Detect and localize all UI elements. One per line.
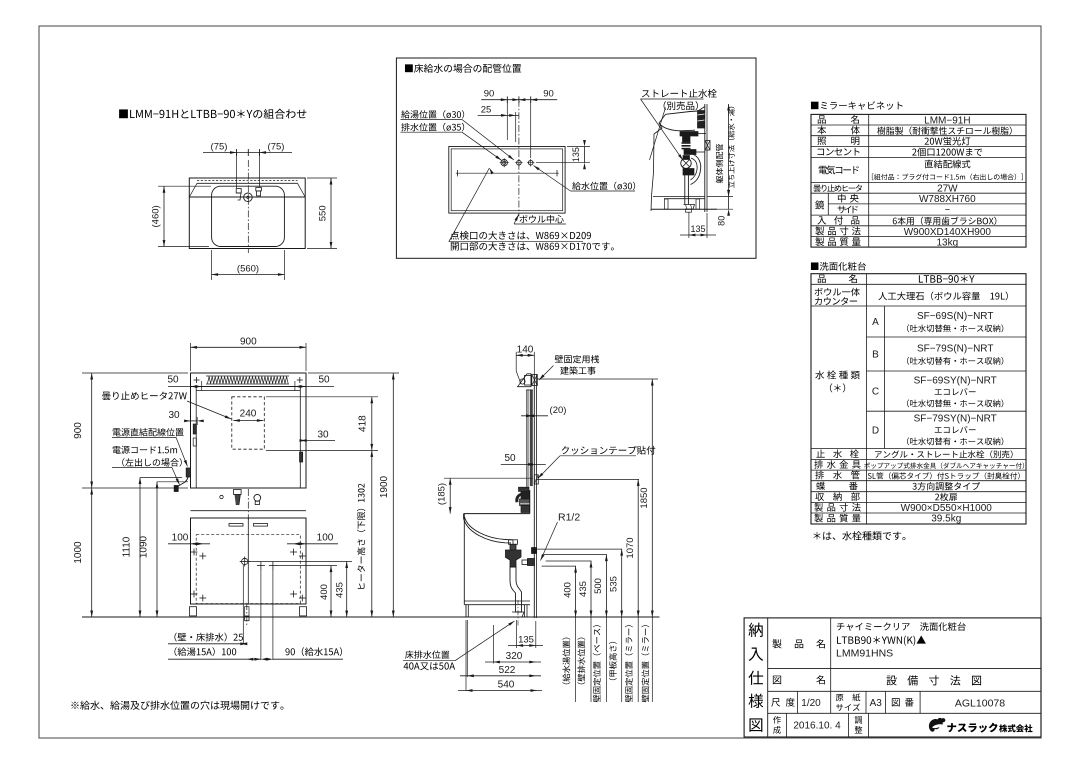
svg-text:LMM−91H: LMM−91H — [924, 116, 970, 127]
svg-text:100: 100 — [317, 533, 334, 544]
svg-text:135: 135 — [571, 147, 581, 162]
svg-text:100: 100 — [172, 533, 189, 544]
svg-text:1070: 1070 — [625, 537, 636, 558]
svg-text:90: 90 — [484, 89, 495, 100]
svg-text:1110: 1110 — [122, 536, 133, 557]
svg-text:SF−69S(N)−NRT: SF−69S(N)−NRT — [917, 311, 994, 322]
svg-text:900: 900 — [73, 422, 84, 439]
svg-text:1/20: 1/20 — [801, 698, 821, 709]
svg-text:50: 50 — [167, 375, 179, 386]
svg-text:(75): (75) — [211, 142, 228, 153]
svg-text:140: 140 — [517, 344, 534, 355]
svg-text:90: 90 — [543, 89, 554, 100]
svg-text:W900×D550×H1000: W900×D550×H1000 — [901, 503, 993, 514]
svg-text:400: 400 — [562, 582, 573, 598]
svg-text:400: 400 — [319, 584, 330, 600]
svg-text:LMM91HNS: LMM91HNS — [836, 648, 893, 660]
svg-text:(185): (185) — [437, 483, 448, 505]
svg-text:320: 320 — [506, 651, 523, 662]
svg-text:522: 522 — [499, 665, 516, 676]
svg-text:500: 500 — [593, 578, 604, 594]
svg-text:535: 535 — [609, 576, 620, 592]
svg-text:SF−69SY(N)−NRT: SF−69SY(N)−NRT — [914, 376, 997, 387]
svg-text:1850: 1850 — [639, 487, 650, 508]
svg-text:AGL10078: AGL10078 — [955, 697, 1005, 709]
svg-text:D: D — [872, 426, 879, 437]
svg-text:435: 435 — [334, 582, 345, 598]
svg-text:135: 135 — [690, 224, 705, 234]
svg-text:A3: A3 — [870, 698, 883, 709]
svg-text:A: A — [872, 317, 879, 328]
svg-text:30: 30 — [317, 430, 329, 441]
svg-text:240: 240 — [240, 409, 257, 420]
svg-text:2016.10. 4: 2016.10. 4 — [793, 721, 841, 732]
svg-text:13kg: 13kg — [937, 238, 959, 249]
svg-text:(460): (460) — [151, 205, 162, 227]
svg-text:(75): (75) — [268, 142, 285, 153]
svg-text:(560): (560) — [237, 264, 259, 275]
svg-text:(20): (20) — [550, 405, 567, 416]
svg-text:435: 435 — [578, 581, 589, 597]
svg-text:W900XD140XH900: W900XD140XH900 — [904, 227, 992, 238]
svg-text:900: 900 — [240, 336, 257, 347]
svg-text:1900: 1900 — [379, 475, 390, 498]
svg-text:1000: 1000 — [73, 541, 84, 564]
svg-text:27W: 27W — [937, 184, 958, 195]
svg-text:50: 50 — [318, 375, 330, 386]
svg-text:SF−79SY(N)−NRT: SF−79SY(N)−NRT — [914, 414, 997, 425]
svg-text:39.5kg: 39.5kg — [931, 514, 961, 525]
svg-text:25: 25 — [481, 104, 492, 115]
svg-text:B: B — [872, 350, 879, 361]
svg-text:C: C — [872, 387, 879, 398]
svg-text:135: 135 — [518, 635, 534, 646]
svg-text:80: 80 — [717, 216, 727, 226]
svg-text:50: 50 — [504, 453, 516, 464]
svg-text:540: 540 — [498, 680, 515, 691]
svg-text:W788XH760: W788XH760 — [919, 194, 976, 205]
svg-text:418: 418 — [358, 415, 369, 432]
svg-text:550: 550 — [318, 205, 329, 221]
svg-text:30: 30 — [168, 410, 180, 421]
svg-text:R1/2: R1/2 — [558, 512, 580, 524]
svg-text:SF−79S(N)−NRT: SF−79S(N)−NRT — [917, 344, 994, 355]
svg-text:1090: 1090 — [139, 535, 150, 558]
